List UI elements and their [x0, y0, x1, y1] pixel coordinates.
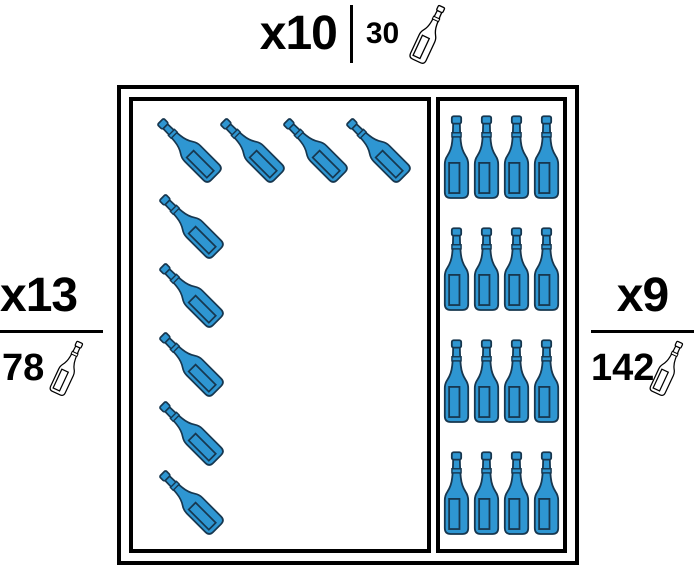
- diagonal-bottle-cell: [150, 392, 230, 472]
- wine-bottle-icon: [153, 326, 228, 401]
- wine-bottle-outline-icon: [406, 1, 452, 66]
- top-capacity-label: x10 30: [228, 0, 472, 68]
- right-multiplier: x9: [591, 272, 694, 320]
- wine-bottle-icon: [473, 227, 500, 312]
- wine-bottle-icon: [443, 227, 470, 312]
- wine-bottle-icon: [503, 115, 530, 200]
- right-divider: [591, 330, 694, 333]
- wine-bottle-icon: [503, 339, 530, 424]
- wine-bottle-icon: [503, 227, 530, 312]
- wine-bottle-icon: [153, 257, 228, 332]
- top-bottle-count: 30: [366, 17, 399, 51]
- wine-bottle-icon: [533, 451, 560, 536]
- diagonal-bottle-cell: [337, 109, 417, 189]
- wine-bottle-icon: [473, 115, 500, 200]
- panel-bottle-row: [443, 227, 560, 312]
- right-bottle-count: 142: [591, 349, 654, 387]
- right-capacity-label: x9 142: [591, 272, 694, 397]
- diagonal-bottle-cell: [150, 461, 230, 541]
- wine-bottle-icon: [153, 464, 228, 539]
- cabinet-outline: [117, 85, 579, 565]
- left-divider: [0, 330, 103, 333]
- diagonal-bottle-cell: [150, 323, 230, 403]
- panel-bottle-row: [443, 339, 560, 424]
- wine-bottle-outline-icon: [47, 337, 90, 398]
- left-multiplier: x13: [0, 272, 103, 320]
- wine-cabinet-capacity-diagram: x10 30 x13 78 x9 142: [0, 0, 694, 571]
- wine-bottle-icon: [473, 451, 500, 536]
- left-capacity-label: x13 78: [0, 272, 103, 397]
- wine-bottle-icon: [153, 188, 228, 263]
- diagonal-bottle-compartment: [129, 97, 431, 553]
- left-bottle-count: 78: [2, 349, 44, 387]
- wine-bottle-icon: [533, 227, 560, 312]
- wine-bottle-icon: [473, 339, 500, 424]
- wine-bottle-icon: [533, 115, 560, 200]
- top-multiplier: x10: [260, 10, 337, 58]
- diagonal-bottle-cell: [150, 185, 230, 265]
- wine-bottle-icon: [443, 115, 470, 200]
- right-count-row: 142: [591, 339, 694, 397]
- wine-bottle-icon: [533, 339, 560, 424]
- panel-bottle-row: [443, 115, 560, 200]
- upright-bottle-compartment: [436, 97, 567, 553]
- left-count-row: 78: [0, 339, 103, 397]
- wine-bottle-icon: [340, 112, 415, 187]
- diagonal-bottle-cell: [150, 254, 230, 334]
- wine-bottle-icon: [443, 339, 470, 424]
- wine-bottle-icon: [443, 451, 470, 536]
- top-divider: [350, 5, 353, 63]
- panel-bottle-row: [443, 451, 560, 536]
- wine-bottle-icon: [503, 451, 530, 536]
- wine-bottle-icon: [153, 395, 228, 470]
